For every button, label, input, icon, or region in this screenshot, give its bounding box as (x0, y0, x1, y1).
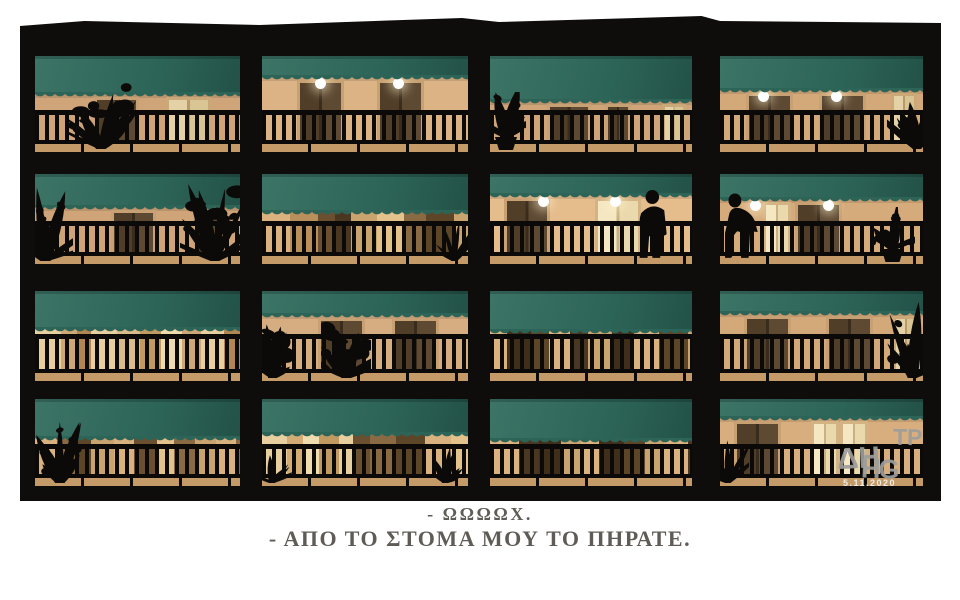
plant-silhouette (720, 429, 749, 484)
awning (262, 291, 468, 313)
cartoon-canvas: ΔΗ ΤΡ ΗG 5.11.2020 - ΩΩΩΩΧ. - ΑΠΟ ΤΟ ΣΤΟ… (0, 0, 960, 600)
signature-date: 5.11.2020 (843, 478, 896, 488)
awning-scallops (35, 327, 240, 334)
plant-silhouette (66, 70, 136, 150)
plant-silhouette (35, 412, 85, 484)
plant-silhouette (870, 207, 915, 262)
building-frame (20, 14, 941, 501)
awning (490, 291, 692, 329)
balcony-r3c2 (262, 291, 468, 381)
balcony-r1c3 (490, 56, 692, 152)
balcony-floor (262, 144, 468, 152)
awning (262, 56, 468, 75)
balcony-r3c1 (35, 291, 240, 381)
awning (720, 399, 923, 416)
plant-silhouette (262, 321, 295, 379)
awning (490, 399, 692, 438)
plant-silhouette (421, 444, 468, 484)
plant-silhouette (490, 92, 526, 150)
signature-monogram-part: ΤΡ (893, 426, 923, 450)
awning-scallops (262, 75, 468, 82)
balcony-r4c2 (262, 399, 468, 486)
balcony-r4c3 (490, 399, 692, 486)
railing-bars (35, 339, 240, 369)
balcony-floor (35, 373, 240, 381)
person-silhouette (634, 190, 669, 260)
balcony-r1c2 (262, 56, 468, 152)
caption: - ΩΩΩΩΧ. - ΑΠΟ ΤΟ ΣΤΟΜΑ ΜΟΥ ΤΟ ΠΗΡΑΤΕ. (0, 503, 960, 552)
plant-silhouette (262, 448, 293, 484)
person-silhouette (725, 190, 760, 260)
balcony-r4c1 (35, 399, 240, 486)
plant-silhouette (885, 294, 923, 379)
balcony-r3c4 (720, 291, 923, 381)
artist-signature: ΔΗ ΤΡ ΗG 5.11.2020 (835, 428, 947, 494)
plant-silhouette (180, 174, 240, 262)
balcony-floor (490, 478, 692, 486)
plant-silhouette (887, 75, 923, 150)
awning (262, 174, 468, 210)
railing-bars (490, 339, 692, 369)
railing-bars (262, 115, 468, 140)
awning (262, 399, 468, 432)
balcony-r2c1 (35, 174, 240, 264)
balcony-r3c3 (490, 291, 692, 381)
plant-silhouette (321, 317, 371, 379)
balcony-r2c3 (490, 174, 692, 264)
awning (35, 291, 240, 327)
balcony-r2c4 (720, 174, 923, 264)
caption-line-2: - ΑΠΟ ΤΟ ΣΤΟΜΑ ΜΟΥ ΤΟ ΠΗΡΑΤΕ. (0, 526, 960, 552)
caption-line-1: - ΩΩΩΩΧ. (0, 503, 960, 525)
awning-scallops (720, 416, 923, 423)
balcony-r1c4 (720, 56, 923, 152)
railing-bars (490, 449, 692, 474)
balcony-r2c2 (262, 174, 468, 264)
balcony-r1c1 (35, 56, 240, 152)
balcony-floor (490, 373, 692, 381)
awning-scallops (262, 432, 468, 439)
plant-silhouette (429, 210, 468, 262)
plant-silhouette (35, 174, 73, 262)
